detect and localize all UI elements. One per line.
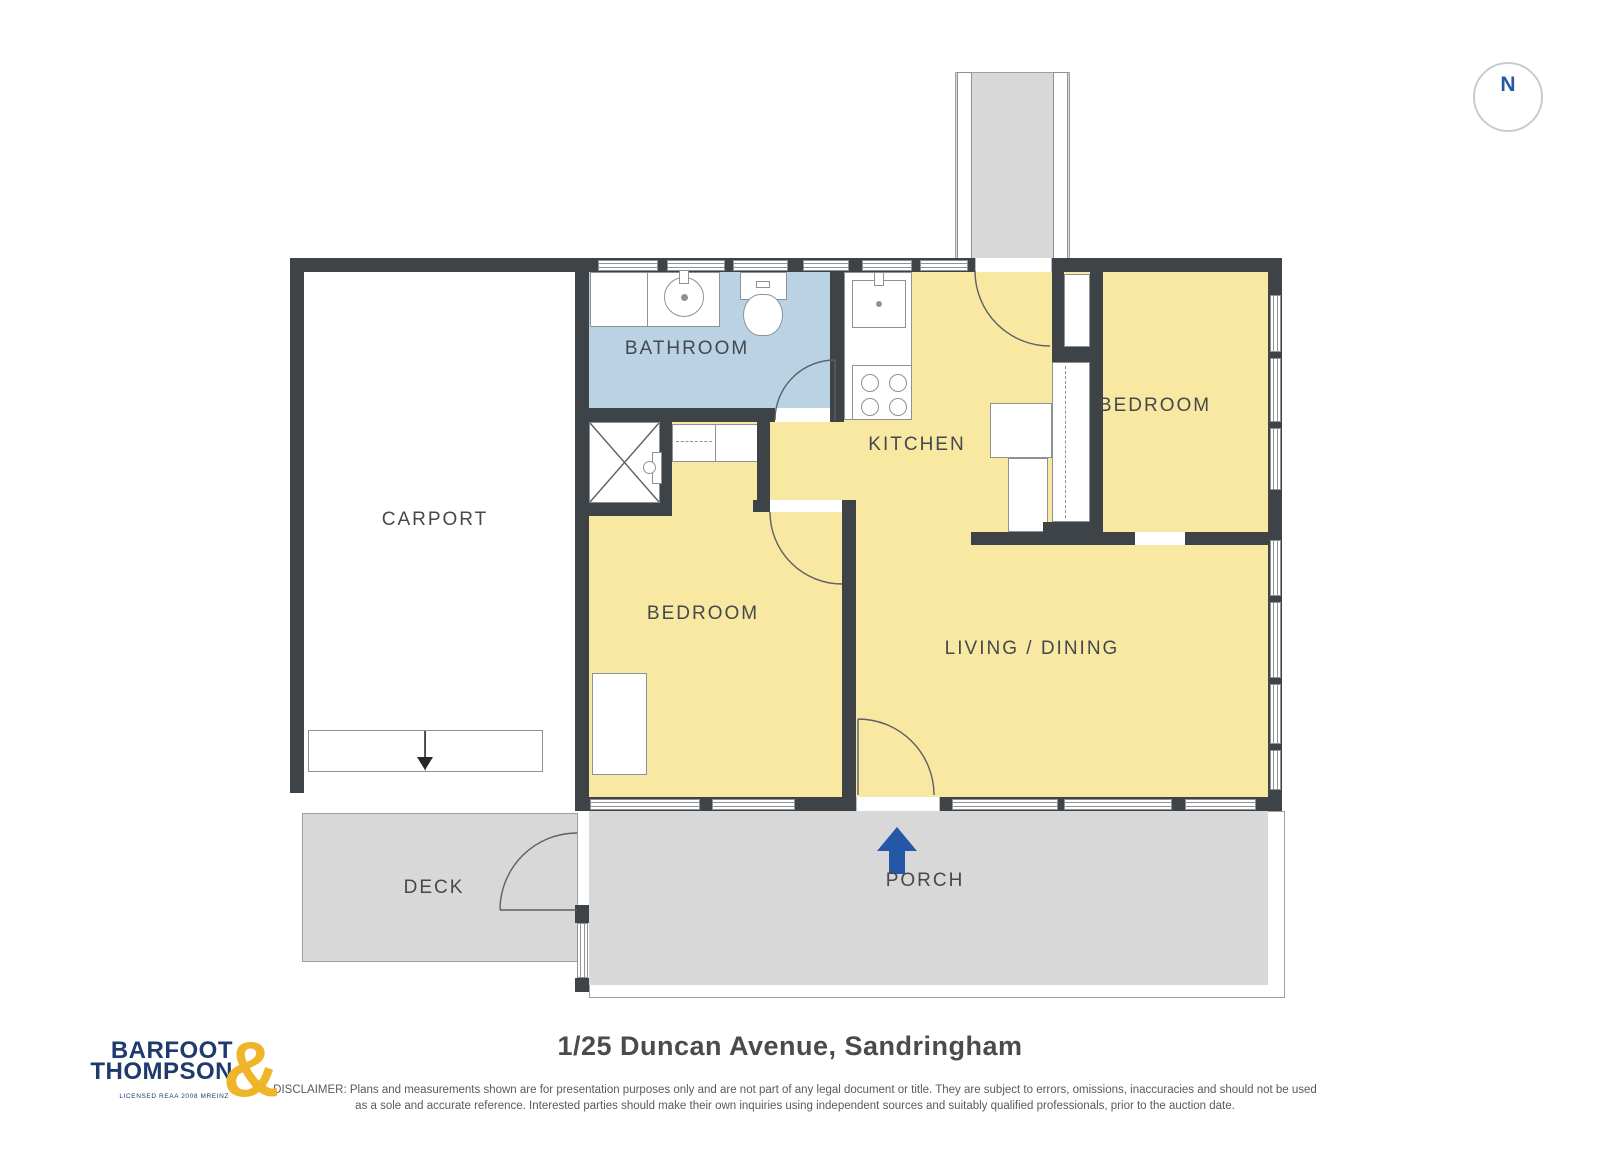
window (733, 260, 788, 271)
wardrobe-divider (715, 424, 716, 462)
wall-bathroom-bottom (575, 408, 775, 422)
window (803, 260, 849, 271)
window (577, 923, 588, 978)
entry-path-side-left (957, 72, 972, 259)
window (712, 799, 795, 810)
room-label-bedroom-top: BEDROOM (1099, 395, 1211, 417)
wall-house-left (575, 258, 589, 811)
toilet-bowl (743, 294, 783, 336)
closet (1064, 274, 1090, 347)
compass-north-label: N (1475, 73, 1541, 97)
door-opening-bedroom-left (770, 500, 842, 512)
kitchen-tap (874, 272, 884, 286)
window (1270, 358, 1281, 422)
wall-shower-bottom (575, 503, 672, 516)
window (1270, 750, 1281, 790)
logo-line-2: THOMPSON (58, 1061, 233, 1082)
door-opening-bedroom-top (1135, 532, 1185, 545)
entry-path-side-right (1053, 72, 1068, 259)
room-label-porch: PORCH (886, 870, 965, 892)
window (1185, 799, 1256, 810)
window (667, 260, 725, 271)
driveway-divider (425, 730, 426, 772)
porch-floor (589, 811, 1268, 985)
basin-tap (679, 270, 689, 284)
toilet-button (756, 281, 770, 288)
kitchen-cabinet (1008, 458, 1048, 532)
wall-living-top-b (1185, 532, 1282, 545)
window (952, 799, 1058, 810)
burner (861, 374, 879, 392)
room-label-bathroom: BATHROOM (625, 338, 749, 360)
disclaimer-line-1: DISCLAIMER: Plans and measurements shown… (250, 1084, 1340, 1096)
wall-hall (757, 422, 770, 512)
window (590, 799, 700, 810)
wall-carport-left (290, 258, 304, 793)
wall-bathroom-kitchen (830, 272, 844, 422)
wardrobe-top-bedroom (1052, 362, 1090, 522)
burner (889, 374, 907, 392)
room-label-bedroom-left: BEDROOM (647, 603, 759, 625)
window (1270, 602, 1281, 678)
burner (889, 398, 907, 416)
page-title: 1/25 Duncan Avenue, Sandringham (400, 1031, 1180, 1062)
window (1270, 428, 1281, 490)
wall-closet-left (1052, 272, 1064, 347)
window (920, 260, 968, 271)
bed (592, 673, 647, 775)
window (1270, 540, 1281, 596)
logo-ampersand-icon: & (223, 1030, 280, 1108)
logo-subtext: LICENSED REAA 2008 MREINZ (58, 1086, 233, 1107)
fridge (990, 403, 1052, 458)
door-opening-porch-entry (856, 797, 940, 811)
basin-drain (681, 294, 688, 301)
wall-living-top-a (971, 532, 1135, 545)
door-opening-kitchen-entry (975, 258, 1052, 272)
compass: N (1473, 62, 1543, 132)
door-opening-bathroom (775, 408, 830, 422)
wardrobe-rail (1065, 366, 1066, 518)
wall-porch-post-a (575, 905, 589, 923)
window (1270, 684, 1281, 744)
wall-bed2-living (842, 500, 856, 811)
window (862, 260, 912, 271)
window (598, 260, 658, 271)
room-label-kitchen: KITCHEN (868, 434, 965, 456)
vanity-divider (647, 272, 648, 327)
burner (861, 398, 879, 416)
disclaimer-line-2: as a sole and accurate reference. Intere… (250, 1100, 1340, 1112)
room-label-carport: CARPORT (382, 509, 489, 531)
wardrobe-rail (676, 441, 712, 442)
window (1064, 799, 1172, 810)
sink-drain (876, 301, 882, 307)
room-label-deck: DECK (404, 877, 465, 899)
wall-bed2-doorjamb (753, 500, 770, 512)
wall-porch-post-b (575, 978, 589, 992)
agency-logo: BARFOOT THOMPSON LICENSED REAA 2008 MREI… (58, 1040, 233, 1107)
floor-plan-canvas: N CARPORT BATHROOM KITCHEN BEDROOM BEDRO… (0, 0, 1600, 1167)
laundry-tap-handle (643, 461, 656, 474)
room-label-living-dining: LIVING / DINING (945, 638, 1120, 660)
window (1270, 295, 1281, 352)
